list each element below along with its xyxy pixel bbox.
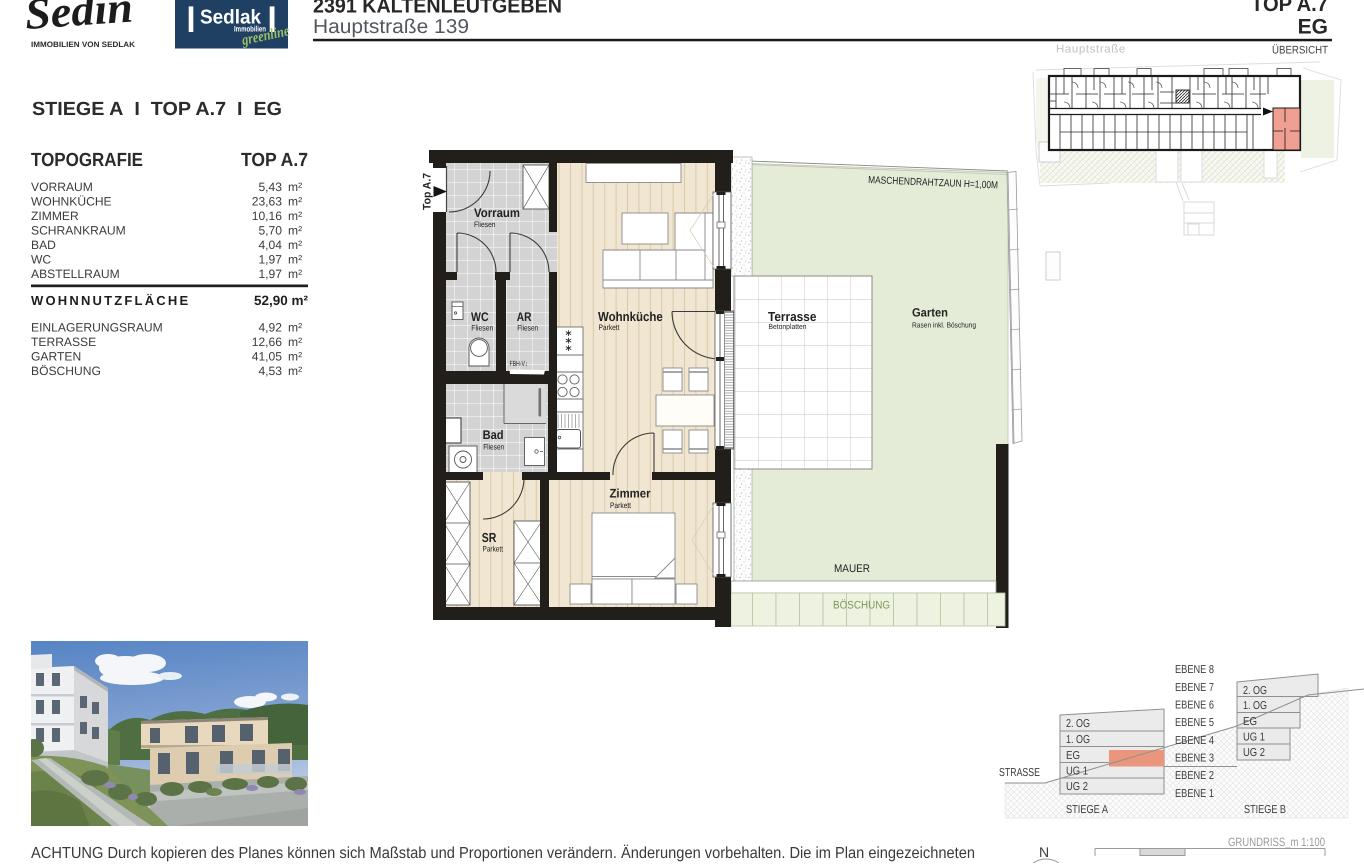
svg-text:m²: m² xyxy=(288,238,302,252)
svg-text:WC: WC xyxy=(31,253,51,267)
svg-text:STRASSE: STRASSE xyxy=(999,767,1040,779)
svg-text:EBENE 3: EBENE 3 xyxy=(1175,753,1214,765)
svg-text:m²: m² xyxy=(288,267,302,281)
svg-text:Fliesen: Fliesen xyxy=(517,324,538,333)
svg-text:2. OG: 2. OG xyxy=(1066,718,1090,730)
svg-text:m²: m² xyxy=(288,350,302,364)
svg-text:m²: m² xyxy=(288,209,302,223)
svg-text:STIEGE A: STIEGE A xyxy=(1066,804,1108,816)
svg-text:TOP A.7: TOP A.7 xyxy=(1251,0,1328,16)
svg-text:Hauptstraße: Hauptstraße xyxy=(1056,44,1126,56)
svg-text:WOHNKÜCHE: WOHNKÜCHE xyxy=(31,195,112,209)
svg-text:Parkett: Parkett xyxy=(599,323,621,332)
svg-text:1,97: 1,97 xyxy=(258,253,282,267)
svg-text:Fliesen: Fliesen xyxy=(474,220,496,229)
svg-text:BAD: BAD xyxy=(31,238,56,252)
svg-text:EBENE 5: EBENE 5 xyxy=(1175,717,1214,729)
svg-text:Parkett: Parkett xyxy=(483,545,504,554)
svg-text:Betonplatten: Betonplatten xyxy=(769,322,807,331)
svg-text:EBENE 4: EBENE 4 xyxy=(1175,735,1214,747)
svg-text:SCHRANKRAUM: SCHRANKRAUM xyxy=(31,224,126,238)
svg-text:Parkett: Parkett xyxy=(610,501,632,510)
svg-text:m²: m² xyxy=(288,364,302,378)
svg-text:N: N xyxy=(1039,844,1049,860)
svg-text:1,97: 1,97 xyxy=(258,267,282,281)
svg-text:Hauptstraße 139: Hauptstraße 139 xyxy=(313,16,469,38)
svg-text:WC: WC xyxy=(471,310,489,324)
svg-text:10,16: 10,16 xyxy=(252,209,283,223)
svg-text:5,43: 5,43 xyxy=(258,180,282,194)
svg-text:4,53: 4,53 xyxy=(258,364,282,378)
svg-text:2391 KALTENLEUTGEBEN: 2391 KALTENLEUTGEBEN xyxy=(313,0,562,18)
svg-text:EBENE 8: EBENE 8 xyxy=(1175,664,1214,676)
svg-text:VORRAUM: VORRAUM xyxy=(31,180,93,194)
svg-text:BÖSCHUNG: BÖSCHUNG xyxy=(31,364,101,378)
svg-text:4,04: 4,04 xyxy=(258,238,282,252)
svg-text:GARTEN: GARTEN xyxy=(31,350,81,364)
svg-text:23,63: 23,63 xyxy=(252,195,283,209)
svg-text:m²: m² xyxy=(288,321,302,335)
svg-text:ACHTUNG Durch kopieren des Pla: ACHTUNG Durch kopieren des Planes können… xyxy=(31,844,975,862)
svg-text:MAUER: MAUER xyxy=(834,563,870,575)
svg-text:UG 1: UG 1 xyxy=(1243,732,1265,744)
svg-text:IMMOBILIEN VON SEDLAK: IMMOBILIEN VON SEDLAK xyxy=(31,40,135,49)
svg-text:FBH-V↓: FBH-V↓ xyxy=(510,359,528,368)
svg-text:Bad: Bad xyxy=(483,428,504,442)
svg-text:TOP A.7: TOP A.7 xyxy=(241,150,308,171)
svg-text:4,92: 4,92 xyxy=(258,321,282,335)
svg-text:Wohnküche: Wohnküche xyxy=(598,309,663,324)
svg-text:1. OG: 1. OG xyxy=(1243,700,1267,712)
svg-text:AR: AR xyxy=(517,310,532,324)
svg-text:41,05: 41,05 xyxy=(252,350,283,364)
svg-text:EBENE 1: EBENE 1 xyxy=(1175,788,1214,800)
svg-text:EG: EG xyxy=(1066,750,1080,762)
svg-text:2. OG: 2. OG xyxy=(1243,685,1267,697)
svg-text:EINLAGERUNGSRAUM: EINLAGERUNGSRAUM xyxy=(31,321,163,335)
svg-text:m²: m² xyxy=(288,224,302,238)
svg-text:Fliesen: Fliesen xyxy=(471,324,493,333)
svg-text:1. OG: 1. OG xyxy=(1066,734,1090,746)
svg-text:ABSTELLRAUM: ABSTELLRAUM xyxy=(31,267,120,281)
svg-text:12,66: 12,66 xyxy=(252,335,283,349)
svg-text:m²: m² xyxy=(288,180,302,194)
svg-text:WOHNNUTZFLÄCHE: WOHNNUTZFLÄCHE xyxy=(31,293,190,308)
svg-text:52,90 m²: 52,90 m² xyxy=(254,293,309,308)
svg-text:Fliesen: Fliesen xyxy=(483,443,504,452)
svg-text:EG: EG xyxy=(1298,16,1328,39)
svg-text:m²: m² xyxy=(288,335,302,349)
svg-text:BÖSCHUNG: BÖSCHUNG xyxy=(833,599,890,612)
svg-text:Garten: Garten xyxy=(912,306,948,320)
svg-text:TERRASSE: TERRASSE xyxy=(31,335,96,349)
svg-text:m²: m² xyxy=(288,195,302,209)
svg-text:Top A.7: Top A.7 xyxy=(422,173,434,210)
svg-text:TOPOGRAFIE: TOPOGRAFIE xyxy=(31,150,143,171)
svg-text:EBENE 6: EBENE 6 xyxy=(1175,700,1214,712)
svg-text:EBENE 2: EBENE 2 xyxy=(1175,770,1214,782)
svg-text:STIEGE B: STIEGE B xyxy=(1244,804,1286,816)
svg-text:m²: m² xyxy=(288,253,302,267)
svg-text:UG 2: UG 2 xyxy=(1066,781,1088,793)
svg-text:ÜBERSICHT: ÜBERSICHT xyxy=(1272,44,1328,57)
svg-text:ZIMMER: ZIMMER xyxy=(31,209,79,223)
svg-text:Zimmer: Zimmer xyxy=(610,487,651,501)
svg-text:Rasen inkl. Böschung: Rasen inkl. Böschung xyxy=(912,321,976,330)
svg-text:EBENE 7: EBENE 7 xyxy=(1175,682,1214,694)
svg-text:Vorraum: Vorraum xyxy=(474,206,520,220)
svg-text:SR: SR xyxy=(482,530,497,545)
svg-text:GRUNDRISS_m 1:100: GRUNDRISS_m 1:100 xyxy=(1228,835,1325,849)
svg-text:STIEGE A I TOP A.7 I EG: STIEGE A I TOP A.7 I EG xyxy=(32,99,282,120)
svg-text:EG: EG xyxy=(1243,716,1257,728)
svg-text:UG 1: UG 1 xyxy=(1066,766,1088,778)
svg-text:5,70: 5,70 xyxy=(258,224,282,238)
svg-text:UG 2: UG 2 xyxy=(1243,747,1265,759)
